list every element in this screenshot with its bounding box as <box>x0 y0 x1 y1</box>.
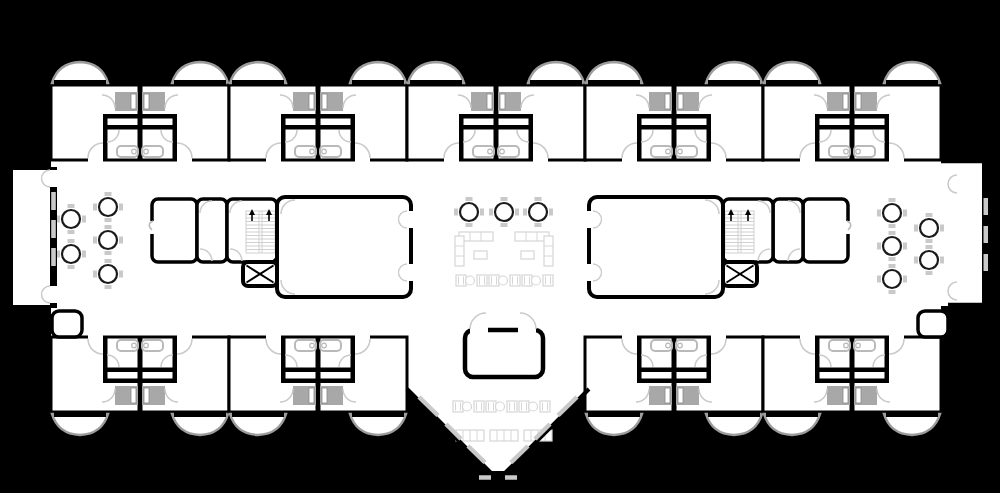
armchair-row1-2 <box>477 275 487 286</box>
floorplan-svg <box>0 0 1000 493</box>
floorplan-page <box>0 0 1000 493</box>
side-table-6 <box>529 402 538 411</box>
room-pair-bottom-3 <box>585 334 763 435</box>
armchair-row2-1 <box>453 401 463 412</box>
room-pair-bottom-4 <box>763 334 941 435</box>
side-table-4 <box>463 402 472 411</box>
balcony <box>13 170 50 305</box>
window-west-2 <box>51 220 56 238</box>
side-table-2 <box>499 276 508 285</box>
coffee-table-b <box>521 251 534 259</box>
room-pair-top-1 <box>51 62 229 163</box>
window-west-1 <box>51 192 56 210</box>
side-table-5 <box>496 402 505 411</box>
window-east-3 <box>984 254 989 271</box>
coffee-table-a <box>474 251 487 259</box>
balcony-door-gap-1 <box>49 170 58 187</box>
side-table-1 <box>466 276 475 285</box>
armchair-row1-3 <box>489 275 499 286</box>
room-pair-top-4 <box>585 62 763 163</box>
sofa-b-side <box>544 236 553 266</box>
vestibule-east <box>918 311 948 337</box>
window-west-3 <box>51 248 56 266</box>
balcony-door-gap-2 <box>49 286 58 303</box>
armchair-row1-4 <box>510 275 520 286</box>
armchair-row2-2 <box>474 401 484 412</box>
meeting-door-gap-2 <box>518 326 536 333</box>
room-pair-bottom-1 <box>51 334 229 435</box>
armchair-row2-4 <box>507 401 517 412</box>
armchair-row1-5 <box>522 275 532 286</box>
side-table-3 <box>532 276 541 285</box>
vestibule-west <box>52 311 82 337</box>
room-pair-top-2 <box>229 62 407 163</box>
armchair-row2-5 <box>519 401 529 412</box>
window-east-2 <box>984 226 989 243</box>
meeting-room <box>465 330 543 377</box>
meeting-door-gap-1 <box>470 326 488 333</box>
armchair-row2-3 <box>486 401 496 412</box>
armchair-row1-6 <box>543 275 553 286</box>
bench-2 <box>490 430 518 441</box>
room-pair-top-5 <box>763 62 941 163</box>
room-pair-bottom-2 <box>229 334 407 435</box>
room-pair-top-3 <box>407 62 585 163</box>
sofa-a-side <box>455 236 464 266</box>
window-east-1 <box>984 198 989 215</box>
armchair-row1-1 <box>456 275 466 286</box>
armchair-row2-6 <box>540 401 550 412</box>
